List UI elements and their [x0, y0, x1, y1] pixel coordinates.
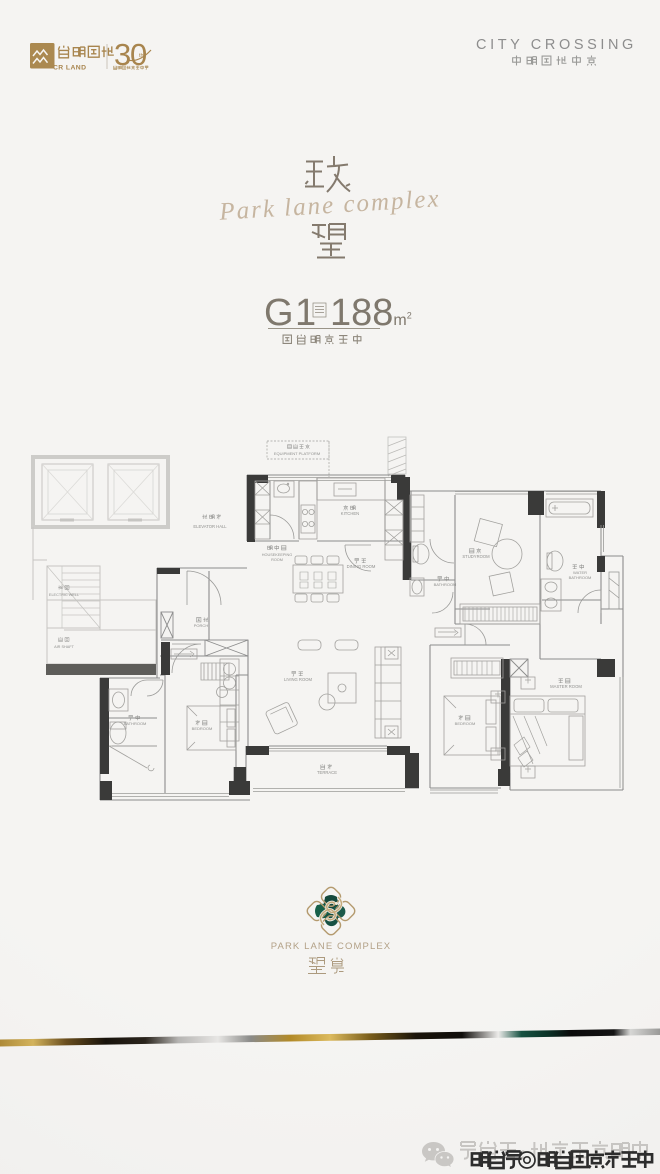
svg-text:DINING ROOM: DINING ROOM [347, 564, 376, 569]
svg-text:ELEVATOR HALL: ELEVATOR HALL [193, 524, 227, 529]
svg-text:PORCH: PORCH [194, 623, 209, 628]
svg-text:MASTER ROOM: MASTER ROOM [550, 684, 582, 689]
svg-text:KITCHEN: KITCHEN [341, 511, 359, 516]
svg-text:ROOM: ROOM [271, 558, 283, 562]
svg-text:th: th [139, 53, 144, 59]
svg-text:TERRACE: TERRACE [317, 770, 337, 775]
svg-text:BATHROOM: BATHROOM [434, 582, 457, 587]
svg-text:BATHROOM: BATHROOM [124, 721, 147, 726]
svg-text:BATHROOM: BATHROOM [569, 575, 592, 580]
svg-text:STUDYROOM: STUDYROOM [462, 554, 490, 559]
svg-text:CR LAND: CR LAND [53, 65, 86, 72]
svg-text:HOUSEKEEPING: HOUSEKEEPING [262, 553, 292, 557]
svg-text:ELECTRIC WELL: ELECTRIC WELL [49, 593, 79, 597]
svg-text:BEDROOM: BEDROOM [455, 721, 476, 726]
svg-text:EQUIPMENT PLATFORM: EQUIPMENT PLATFORM [274, 451, 320, 456]
svg-text:BEDROOM: BEDROOM [192, 726, 213, 731]
svg-text:AIR SHAFT: AIR SHAFT [54, 645, 75, 649]
svg-text:LIVING ROOM: LIVING ROOM [284, 677, 312, 682]
